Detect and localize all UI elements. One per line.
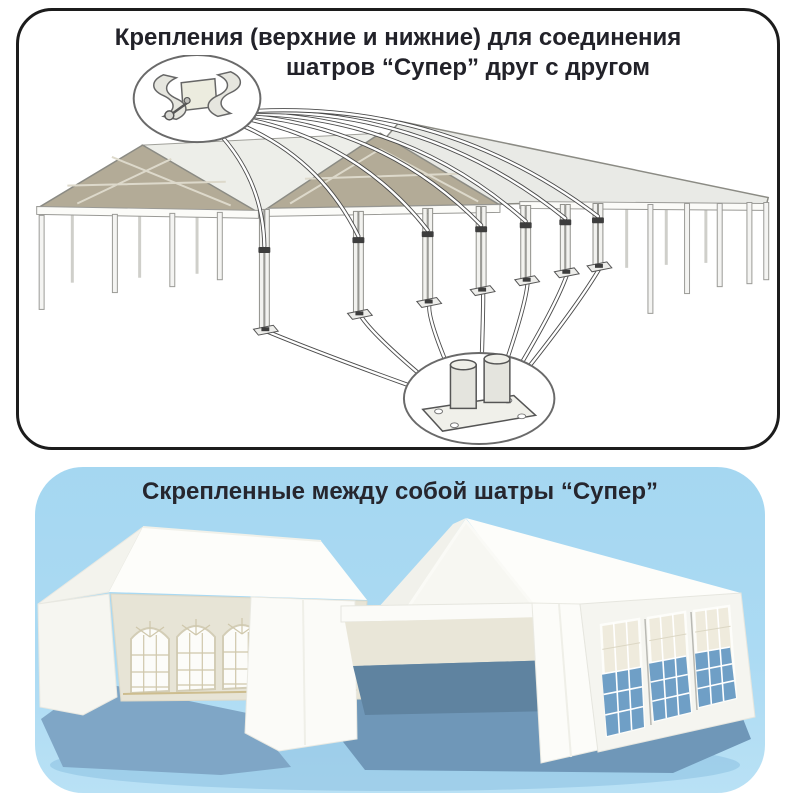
upper-clamp-mark [475,226,487,232]
window-glass [649,656,691,721]
upper-clamp-mark [520,222,532,228]
upper-clamp-mark [352,237,364,243]
left-tent-corner-panel [245,597,357,751]
tent-leg [170,213,175,286]
base-plate-clamp [478,288,486,292]
upper-clamp-mark [592,217,604,223]
window-glass [695,647,736,707]
left-tent-front-roof [109,527,367,600]
junction-double-leg [598,203,602,265]
junction-double-leg [265,209,269,329]
junction-double-leg [566,204,570,271]
base-plate-clamp [595,264,603,268]
callout-line [266,331,407,385]
base-plate-detail-icon [404,353,554,444]
tent-leg [648,204,653,313]
tent-leg [39,215,44,309]
junction-double-leg [359,211,363,313]
window-glass [602,667,644,736]
tent-leg [764,202,769,279]
tube-socket [450,360,476,409]
base-plate-clamp [562,270,570,274]
base-plate-clamp [261,327,269,331]
front-legs-group [39,202,769,313]
upper-clamp-mark [422,231,434,237]
connector-diagram-panel: Крепления (верхние и нижние) для соедине… [16,8,780,450]
joined-tents-panel: Скрепленные между собой шатры “Супер” [35,467,765,793]
bolt-hole [518,414,526,419]
pole-clamp-detail-icon [134,55,261,142]
base-plate-clamp [523,278,531,282]
tent-leg [112,214,117,292]
callout-line [482,292,483,353]
upper-clamp-mark [258,247,270,253]
bottom-panel-title: Скрепленные между собой шатры “Супер” [35,478,765,506]
junction-double-leg [428,208,432,301]
arched-window [131,628,169,693]
base-plate-clamp [355,311,363,315]
tent-leg [685,203,690,293]
bolt-hole [450,423,458,428]
page: Крепления (верхние и нижние) для соедине… [0,0,800,800]
joined-tent-frames-line-drawing [19,55,777,447]
arched-windows-group [131,618,261,693]
joined-white-tents-illustration [35,467,765,793]
bolt-hole [435,409,443,414]
arched-window [177,626,215,691]
left-tent-end-wall [38,594,117,715]
base-plate-clamp [425,300,433,304]
tent-leg [717,203,722,286]
junction-double-leg [482,206,486,289]
top-title-line1: Крепления (верхние и нижние) для соедине… [19,23,777,53]
tube-socket [484,354,510,403]
tent-leg [217,212,222,279]
tent-leg [747,202,752,283]
upper-clamp-mark [559,219,571,225]
junction-double-leg [526,205,530,279]
